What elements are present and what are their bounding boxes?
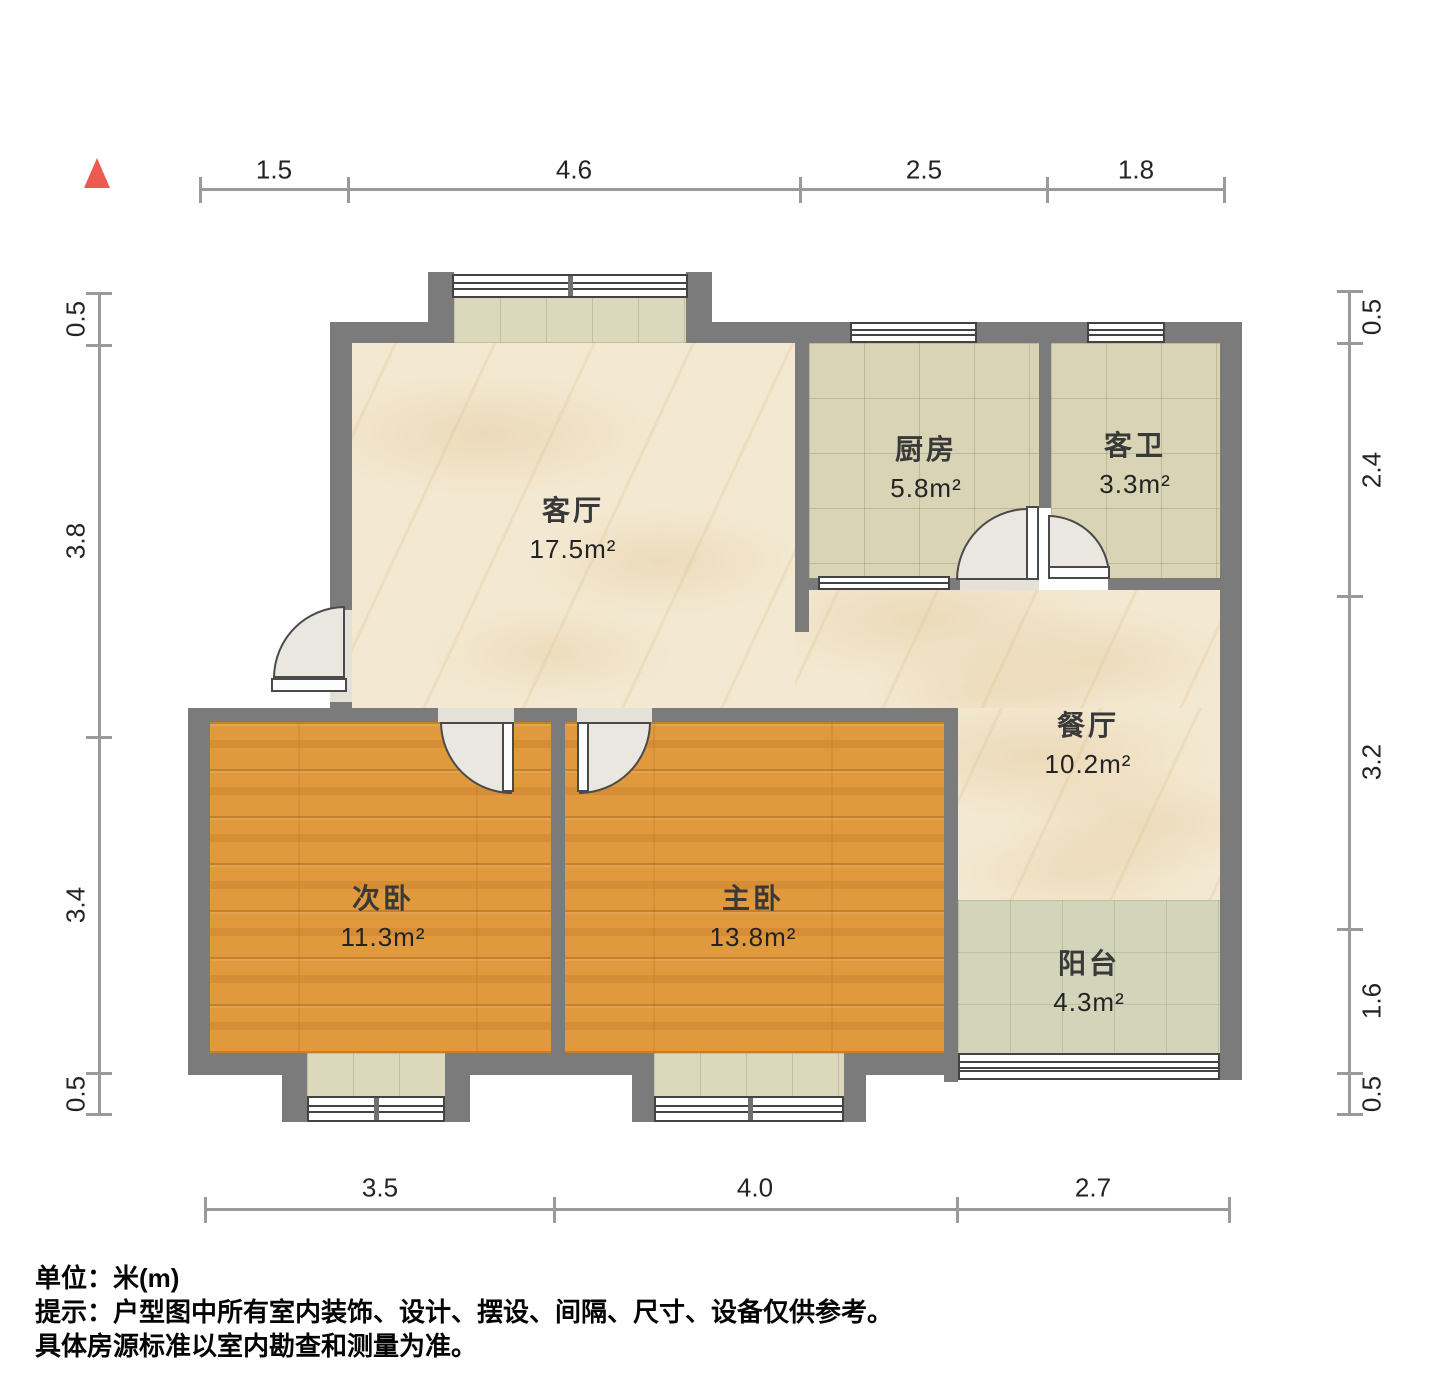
- dining-room-name: 餐厅: [1045, 704, 1132, 744]
- floor-plan-canvas: 客厅 17.5m² 厨房 5.8m² 客卫 3.3m² 餐厅 10.2m² 次卧…: [0, 0, 1430, 1400]
- master-bedroom-bay-sill: [654, 1053, 844, 1096]
- balcony-window: [958, 1053, 1220, 1080]
- kitchen-window: [850, 322, 977, 343]
- bathroom-window: [1087, 322, 1165, 343]
- dim-line-top: [200, 188, 1225, 191]
- wall-right-outer: [1220, 322, 1242, 1080]
- living-room-bay-window: [452, 274, 688, 298]
- dim-label-right-2: 3.2: [1357, 744, 1388, 780]
- dim-label-top-0: 1.5: [256, 155, 292, 186]
- dim-tick: [1223, 177, 1226, 203]
- bay-stub-3: [632, 1053, 654, 1122]
- dim-tick: [86, 1113, 112, 1116]
- dim-line-right: [1348, 291, 1351, 1115]
- wall-bedroom-top-1: [188, 708, 438, 722]
- dim-tick: [1337, 595, 1363, 598]
- dim-tick: [1337, 1113, 1363, 1116]
- dim-label-right-0: 0.5: [1357, 299, 1388, 335]
- hallway-floor: [795, 590, 1220, 708]
- balcony-name: 阳台: [1053, 942, 1124, 982]
- wall-top-3: [977, 322, 1087, 343]
- second-bedroom-bay-sill: [307, 1053, 445, 1096]
- footnote-tip: 提示：户型图中所有室内装饰、设计、摆设、间隔、尺寸、设备仅供参考。: [35, 1292, 893, 1329]
- north-arrow-icon: [84, 158, 110, 188]
- dim-label-left-1: 3.8: [61, 523, 92, 559]
- wall-bedroom-top-2: [514, 708, 577, 722]
- dim-label-right-3: 1.6: [1357, 983, 1388, 1019]
- bay-window-wall-left: [428, 272, 454, 343]
- dining-room-area: 10.2m²: [1045, 749, 1132, 780]
- dim-line-bottom: [205, 1208, 1230, 1211]
- second-bedroom-door-leaf: [502, 722, 514, 792]
- footnote-unit: 单位：米(m): [35, 1258, 179, 1295]
- dim-label-bottom-1: 4.0: [737, 1173, 773, 1204]
- master-bedroom-door-leaf: [577, 722, 589, 792]
- bathroom-door-leaf: [1048, 566, 1110, 579]
- dim-label-left-2: 3.4: [61, 887, 92, 923]
- dim-label-top-2: 2.5: [906, 155, 942, 186]
- bathroom-area: 3.3m²: [1099, 469, 1170, 500]
- wall-bottom-2: [470, 1053, 632, 1075]
- dim-tick: [1337, 290, 1363, 293]
- dim-tick: [86, 344, 112, 347]
- second-bedroom-door-threshold: [438, 708, 514, 722]
- kitchen-name: 厨房: [890, 428, 961, 468]
- wall-bathroom-bottom: [1108, 578, 1242, 590]
- wall-bedroom-divider: [551, 722, 565, 1053]
- room-label-living: 客厅 17.5m²: [530, 489, 617, 565]
- second-bedroom-name: 次卧: [341, 877, 426, 917]
- master-bedroom-window: [654, 1096, 844, 1122]
- footnote-tip2: 具体房源标准以室内勘查和测量为准。: [35, 1326, 477, 1363]
- wall-left-bedroom: [188, 708, 210, 1075]
- wall-top-2: [712, 322, 850, 343]
- dim-tick: [86, 736, 112, 739]
- dim-label-bottom-0: 3.5: [362, 1173, 398, 1204]
- room-label-kitchen: 厨房 5.8m²: [890, 428, 961, 504]
- wall-kitchen-bottom-left: [795, 578, 818, 590]
- wall-kitchen-bath-divider: [1039, 343, 1051, 508]
- balcony-area: 4.3m²: [1053, 987, 1124, 1018]
- dim-tick: [1046, 177, 1049, 203]
- wall-bedroom-top-3: [652, 708, 944, 722]
- dim-tick: [199, 177, 202, 203]
- kitchen-area: 5.8m²: [890, 473, 961, 504]
- dim-tick: [86, 292, 112, 295]
- dim-tick: [956, 1197, 959, 1223]
- bay-stub-1: [282, 1053, 307, 1122]
- living-room-name: 客厅: [530, 489, 617, 529]
- wall-dining-divider: [944, 708, 958, 1082]
- dim-tick: [86, 1072, 112, 1075]
- dim-label-left-3: 0.5: [61, 1076, 92, 1112]
- living-room-area: 17.5m²: [530, 534, 617, 565]
- room-label-bathroom: 客卫 3.3m²: [1099, 424, 1170, 500]
- dim-tick: [553, 1197, 556, 1223]
- kitchen-door-leaf: [1026, 506, 1039, 580]
- dim-tick: [1228, 1197, 1231, 1223]
- entry-door-swing: [273, 606, 345, 678]
- bathroom-name: 客卫: [1099, 424, 1170, 464]
- dim-label-top-3: 1.8: [1118, 155, 1154, 186]
- bay-stub-4: [844, 1053, 866, 1122]
- room-label-master-bedroom: 主卧 13.8m²: [710, 877, 797, 953]
- room-label-balcony: 阳台 4.3m²: [1053, 942, 1124, 1018]
- wall-bottom-1: [188, 1053, 282, 1075]
- room-label-second-bedroom: 次卧 11.3m²: [341, 877, 426, 953]
- dim-tick: [1337, 1072, 1363, 1075]
- dim-tick: [799, 177, 802, 203]
- bay-window-sill: [454, 296, 686, 343]
- dim-label-bottom-2: 2.7: [1075, 1173, 1111, 1204]
- room-label-dining: 餐厅 10.2m²: [1045, 704, 1132, 780]
- bay-stub-2: [445, 1053, 470, 1122]
- kitchen-sliding-window: [818, 576, 950, 590]
- dim-tick: [347, 177, 350, 203]
- bay-window-wall-right: [686, 272, 712, 343]
- dim-tick: [1337, 342, 1363, 345]
- dim-line-left: [98, 293, 101, 1115]
- dim-label-left-0: 0.5: [61, 301, 92, 337]
- master-bedroom-name: 主卧: [710, 877, 797, 917]
- entry-door-leaf: [271, 678, 347, 692]
- second-bedroom-area: 11.3m²: [341, 922, 426, 953]
- master-bedroom-door-threshold: [577, 708, 652, 722]
- dim-tick: [1337, 928, 1363, 931]
- wall-left-upper: [330, 322, 352, 610]
- dim-tick: [204, 1197, 207, 1223]
- dim-label-right-1: 2.4: [1357, 452, 1388, 488]
- master-bedroom-area: 13.8m²: [710, 922, 797, 953]
- dim-label-right-4: 0.5: [1357, 1076, 1388, 1112]
- second-bedroom-window: [307, 1096, 445, 1122]
- dim-label-top-1: 4.6: [556, 155, 592, 186]
